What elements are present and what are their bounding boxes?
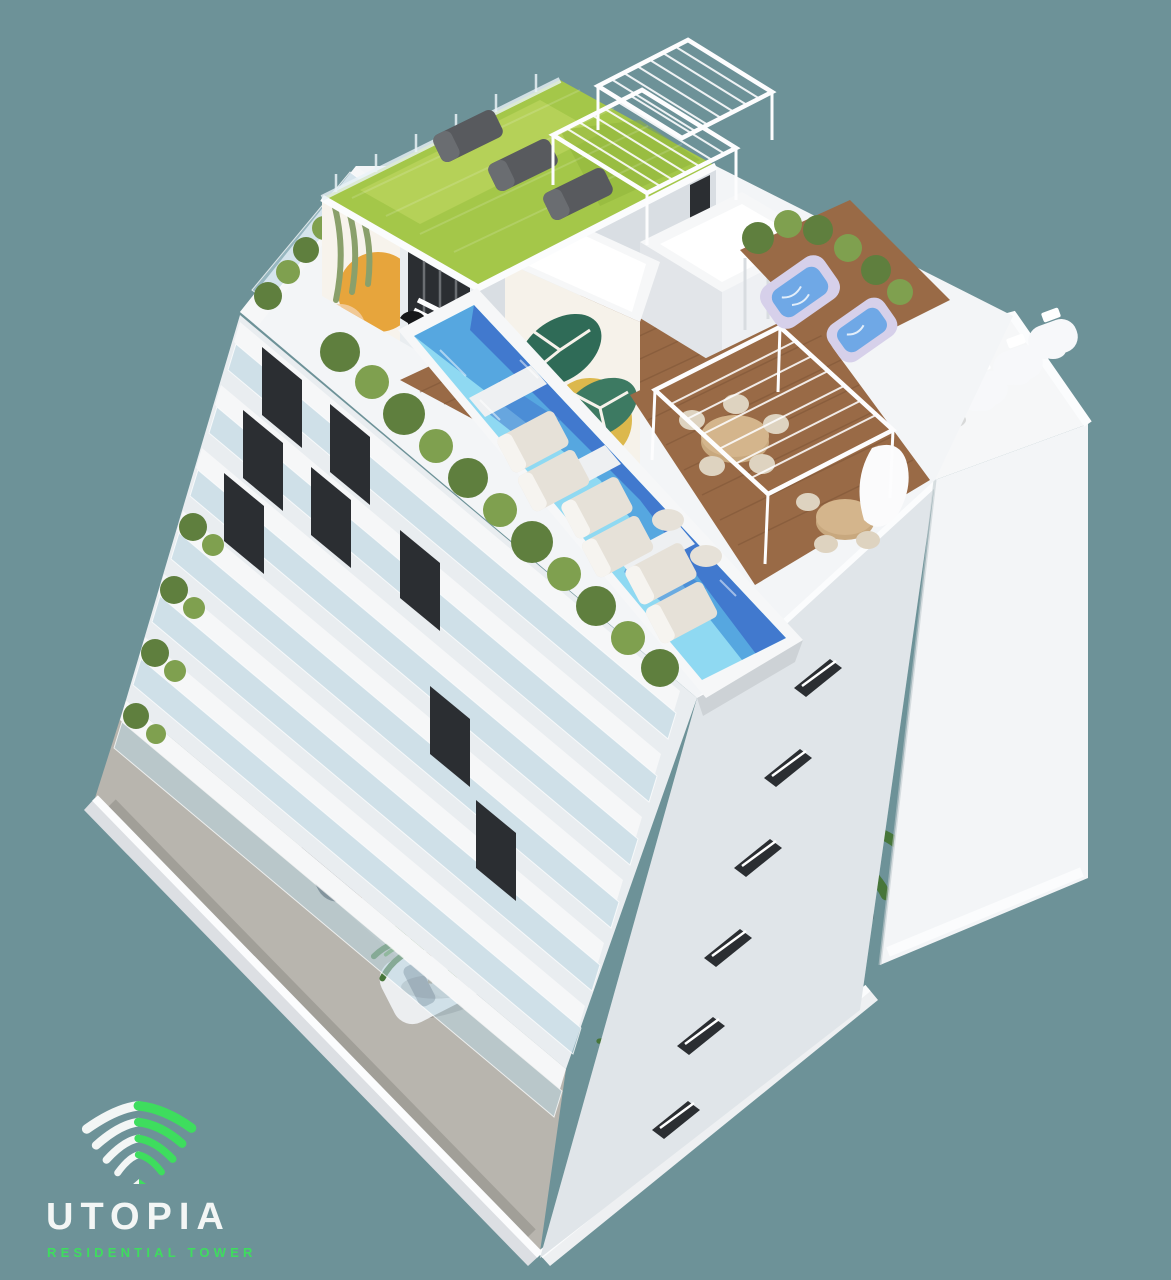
- architectural-render-page: UTOPIA RESIDENTIAL TOWER: [0, 0, 1171, 1280]
- logo-tagline: RESIDENTIAL TOWER: [47, 1245, 276, 1260]
- building-render-scene: [0, 0, 1171, 1280]
- roof-chevrons-logo-icon: [74, 1098, 206, 1184]
- logo-name: UTOPIA: [46, 1198, 276, 1236]
- brand-logo: UTOPIA RESIDENTIAL TOWER: [36, 1098, 276, 1260]
